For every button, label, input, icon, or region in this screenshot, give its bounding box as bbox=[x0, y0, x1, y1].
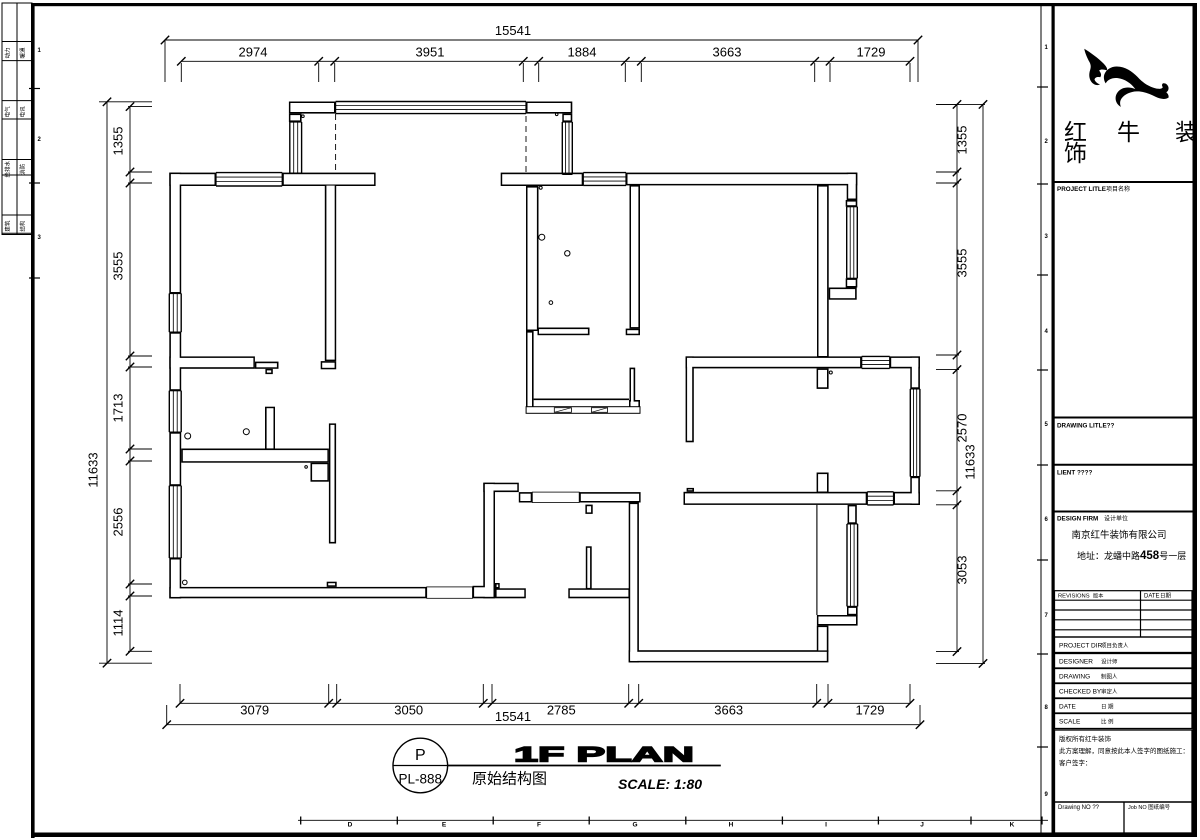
svg-text:饰: 饰 bbox=[1064, 140, 1087, 166]
svg-text:版本: 版本 bbox=[1093, 592, 1103, 600]
svg-text:LIENT ????: LIENT ???? bbox=[1057, 470, 1092, 477]
svg-text:地址：龙蟠中路458号一层: 地址：龙蟠中路458号一层 bbox=[1077, 550, 1186, 562]
svg-text:3663: 3663 bbox=[713, 45, 742, 60]
svg-text:F: F bbox=[537, 822, 541, 829]
svg-text:15541: 15541 bbox=[495, 709, 531, 724]
svg-text:PL-888: PL-888 bbox=[399, 772, 443, 787]
svg-text:K: K bbox=[1010, 822, 1015, 829]
svg-text:1355: 1355 bbox=[955, 126, 970, 155]
svg-text:DATE: DATE bbox=[1059, 703, 1077, 710]
svg-text:2974: 2974 bbox=[239, 45, 268, 60]
svg-text:3555: 3555 bbox=[955, 249, 970, 278]
svg-text:E: E bbox=[442, 822, 447, 829]
svg-text:1F PLAN: 1F PLAN bbox=[514, 744, 694, 767]
svg-text:日期: 日期 bbox=[1160, 593, 1172, 600]
svg-text:此方案理解，同意按此本人签字的图纸施工：: 此方案理解，同意按此本人签字的图纸施工： bbox=[1059, 746, 1189, 755]
svg-text:1355: 1355 bbox=[111, 127, 126, 156]
svg-text:P: P bbox=[415, 747, 426, 764]
svg-text:设计单位: 设计单位 bbox=[1104, 515, 1128, 523]
svg-text:D: D bbox=[348, 822, 353, 829]
svg-text:CHECKED BY: CHECKED BY bbox=[1059, 688, 1102, 695]
svg-text:2556: 2556 bbox=[111, 508, 126, 537]
svg-text:1729: 1729 bbox=[857, 45, 886, 60]
svg-text:PROJECT DIR: PROJECT DIR bbox=[1059, 642, 1103, 649]
svg-text:结构: 结构 bbox=[19, 220, 27, 232]
svg-text:牛: 牛 bbox=[1117, 119, 1140, 145]
svg-text:装: 装 bbox=[1175, 119, 1198, 145]
svg-text:J: J bbox=[920, 822, 924, 829]
svg-text:1713: 1713 bbox=[111, 394, 126, 423]
svg-text:1729: 1729 bbox=[856, 703, 885, 718]
svg-text:原始结构图: 原始结构图 bbox=[472, 771, 547, 788]
svg-text:审定人: 审定人 bbox=[1101, 687, 1118, 695]
svg-text:REVISIONS: REVISIONS bbox=[1058, 594, 1090, 600]
svg-text:H: H bbox=[729, 822, 734, 829]
svg-text:3050: 3050 bbox=[394, 703, 423, 718]
svg-text:11633: 11633 bbox=[86, 452, 101, 487]
svg-text:制图人: 制图人 bbox=[1101, 672, 1118, 680]
svg-text:1114: 1114 bbox=[111, 610, 126, 637]
svg-text:给排水: 给排水 bbox=[4, 160, 12, 177]
svg-text:3951: 3951 bbox=[416, 45, 445, 60]
svg-text:15541: 15541 bbox=[495, 23, 531, 38]
svg-text:Drawing NO ??: Drawing NO ?? bbox=[1058, 805, 1100, 811]
svg-text:I: I bbox=[825, 822, 827, 829]
svg-text:南京红牛装饰有限公司: 南京红牛装饰有限公司 bbox=[1071, 529, 1166, 541]
svg-text:项目负责人: 项目负责人 bbox=[1101, 641, 1129, 649]
svg-text:PROJECT LITLE: PROJECT LITLE bbox=[1057, 186, 1106, 193]
svg-text:客户签字：: 客户签字： bbox=[1059, 758, 1092, 767]
svg-text:Job NO 图纸编号: Job NO 图纸编号 bbox=[1128, 803, 1171, 811]
svg-text:建筑: 建筑 bbox=[4, 220, 12, 232]
svg-text:11633: 11633 bbox=[963, 444, 978, 479]
svg-text:消防: 消防 bbox=[19, 163, 27, 175]
svg-text:2570: 2570 bbox=[955, 414, 970, 443]
svg-text:电讯: 电讯 bbox=[19, 106, 27, 118]
svg-text:比 例: 比 例 bbox=[1101, 718, 1114, 726]
svg-text:3079: 3079 bbox=[240, 703, 269, 718]
svg-text:1884: 1884 bbox=[568, 45, 597, 60]
svg-text:DESIGNER: DESIGNER bbox=[1059, 658, 1093, 665]
svg-text:3053: 3053 bbox=[955, 556, 970, 585]
svg-text:SCALE: SCALE bbox=[1059, 719, 1081, 726]
svg-text:设计师: 设计师 bbox=[1101, 657, 1118, 665]
svg-text:版权所有红牛装饰: 版权所有红牛装饰 bbox=[1059, 734, 1112, 743]
svg-text:G: G bbox=[632, 822, 637, 829]
svg-text:DRAWING: DRAWING bbox=[1059, 673, 1090, 680]
svg-text:DRAWING LITLE??: DRAWING LITLE?? bbox=[1057, 423, 1115, 430]
svg-text:DESIGN FIRM: DESIGN FIRM bbox=[1057, 516, 1098, 523]
svg-text:日 期: 日 期 bbox=[1101, 703, 1114, 710]
svg-text:电气: 电气 bbox=[4, 106, 12, 118]
svg-text:项目名称: 项目名称 bbox=[1106, 185, 1130, 193]
svg-text:3663: 3663 bbox=[714, 703, 743, 718]
svg-text:暖通: 暖通 bbox=[19, 47, 27, 59]
svg-text:DATE: DATE bbox=[1144, 594, 1160, 600]
svg-text:SCALE: 1:80: SCALE: 1:80 bbox=[618, 776, 702, 792]
svg-text:动力: 动力 bbox=[4, 47, 12, 58]
svg-text:3555: 3555 bbox=[111, 252, 126, 281]
svg-text:2785: 2785 bbox=[547, 703, 576, 718]
